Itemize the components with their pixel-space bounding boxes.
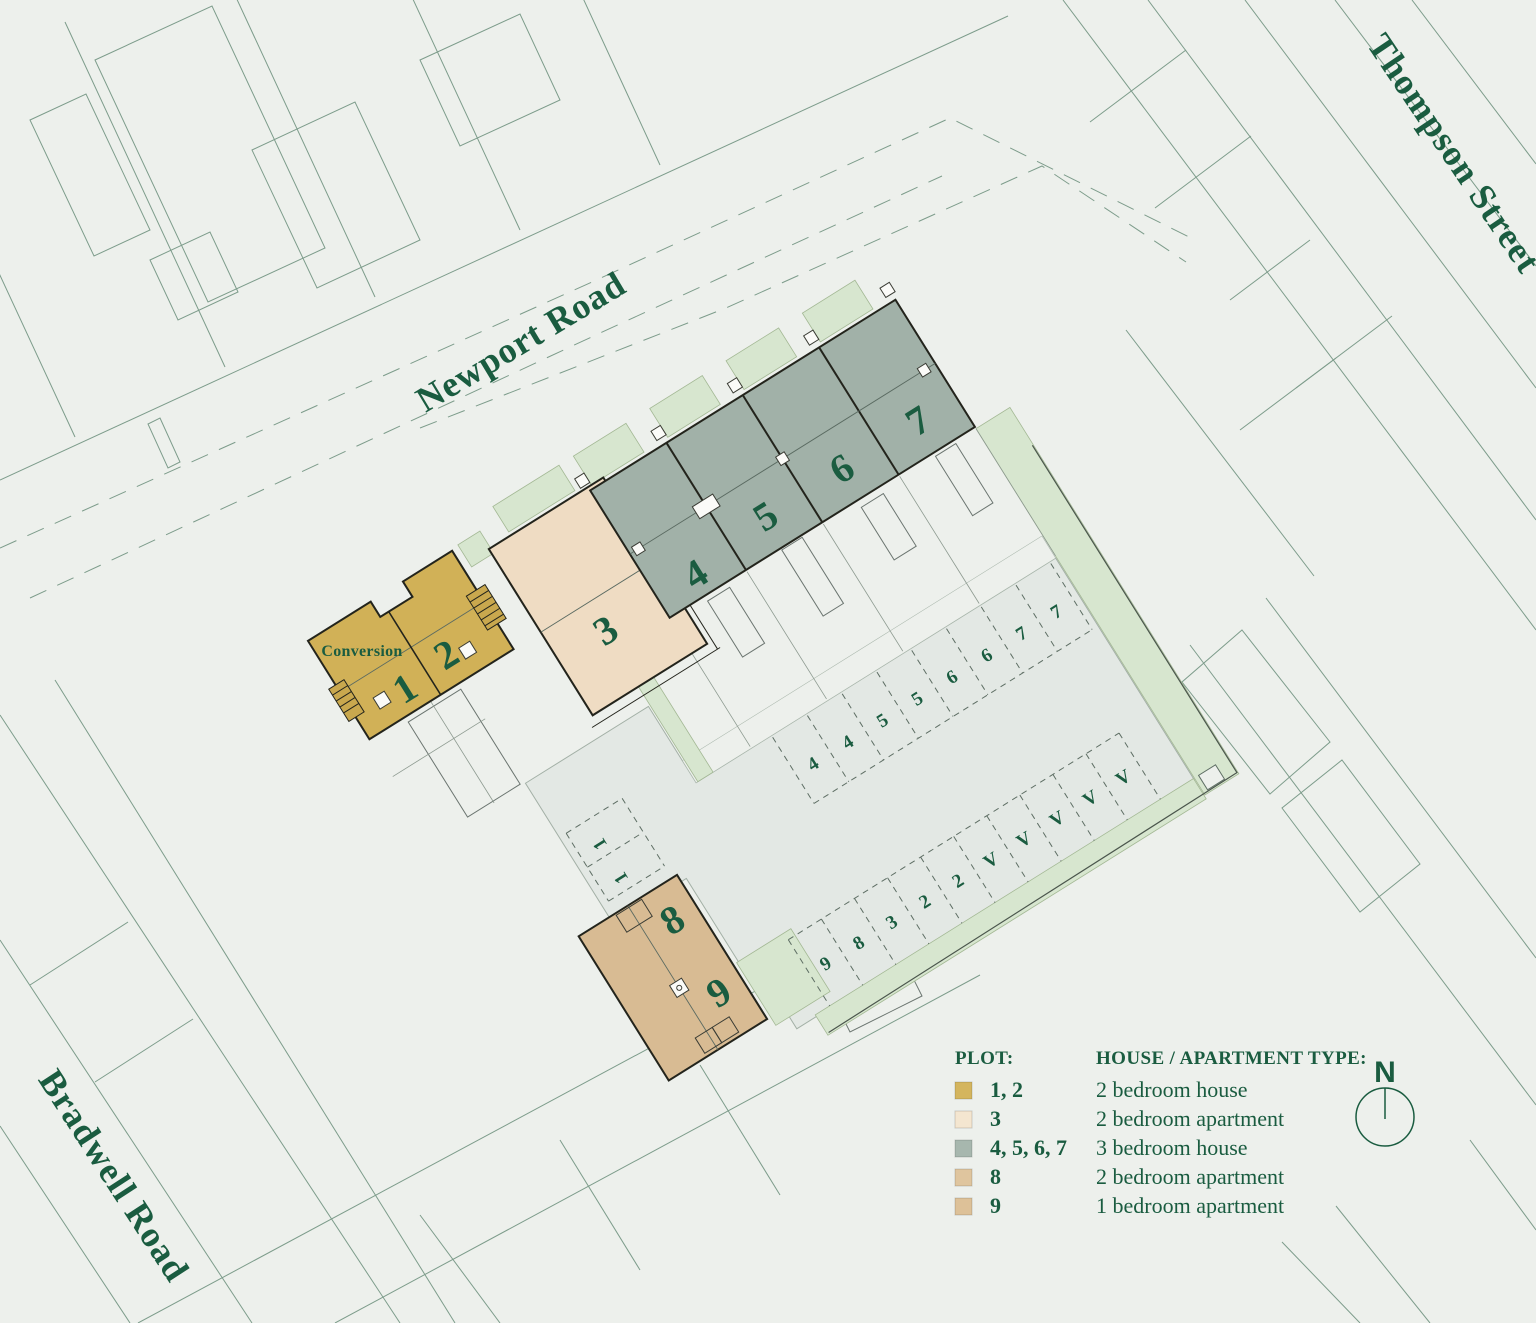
legend-type-label: 2 bedroom apartment — [1096, 1106, 1284, 1131]
legend-plots-label: 1, 2 — [990, 1077, 1023, 1102]
legend-plots-label: 9 — [990, 1193, 1001, 1218]
legend-row: 1, 2 2 bedroom house — [955, 1077, 1248, 1102]
plan-background — [0, 0, 1536, 1323]
legend-row: 4, 5, 6, 7 3 bedroom house — [955, 1135, 1248, 1160]
legend-swatch — [955, 1111, 972, 1128]
legend-type-label: 2 bedroom house — [1096, 1077, 1248, 1102]
site-plan-svg: 4 4 5 5 6 6 7 7 9 8 3 2 2 V V V V V 1 1 — [0, 0, 1536, 1323]
legend-type-header: HOUSE / APARTMENT TYPE: — [1096, 1048, 1367, 1069]
legend-type-label: 3 bedroom house — [1096, 1135, 1248, 1160]
legend-plots-label: 8 — [990, 1164, 1001, 1189]
legend-plot-header: PLOT: — [955, 1048, 1014, 1069]
legend-swatch — [955, 1140, 972, 1157]
legend-swatch — [955, 1082, 972, 1099]
site-plan-page: 4 4 5 5 6 6 7 7 9 8 3 2 2 V V V V V 1 1 — [0, 0, 1536, 1323]
compass-north-label: N — [1374, 1056, 1396, 1089]
legend-plots-label: 3 — [990, 1106, 1001, 1131]
legend-swatch — [955, 1198, 972, 1215]
legend-type-label: 1 bedroom apartment — [1096, 1193, 1284, 1218]
legend-type-label: 2 bedroom apartment — [1096, 1164, 1284, 1189]
conversion-label: Conversion — [321, 643, 402, 660]
legend-swatch — [955, 1169, 972, 1186]
legend-plots-label: 4, 5, 6, 7 — [990, 1135, 1067, 1160]
